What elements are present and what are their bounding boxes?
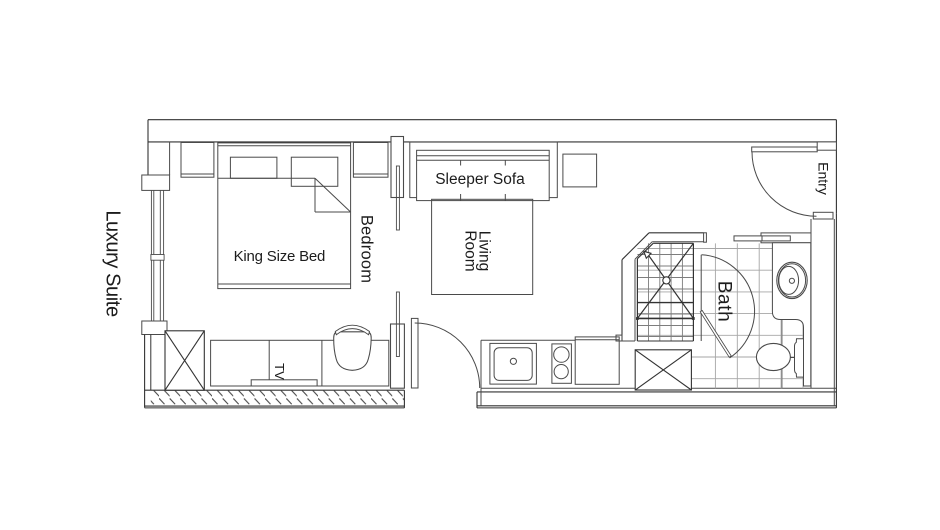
- svg-text:Entry: Entry: [816, 162, 832, 195]
- svg-text:King Size Bed: King Size Bed: [234, 248, 326, 265]
- svg-text:TV: TV: [272, 363, 287, 380]
- svg-text:Room: Room: [462, 230, 479, 271]
- svg-text:Bath: Bath: [714, 281, 735, 323]
- svg-text:Sleeper Sofa: Sleeper Sofa: [435, 171, 525, 188]
- svg-text:Luxury Suite: Luxury Suite: [102, 210, 124, 317]
- svg-text:Bedroom: Bedroom: [358, 215, 376, 283]
